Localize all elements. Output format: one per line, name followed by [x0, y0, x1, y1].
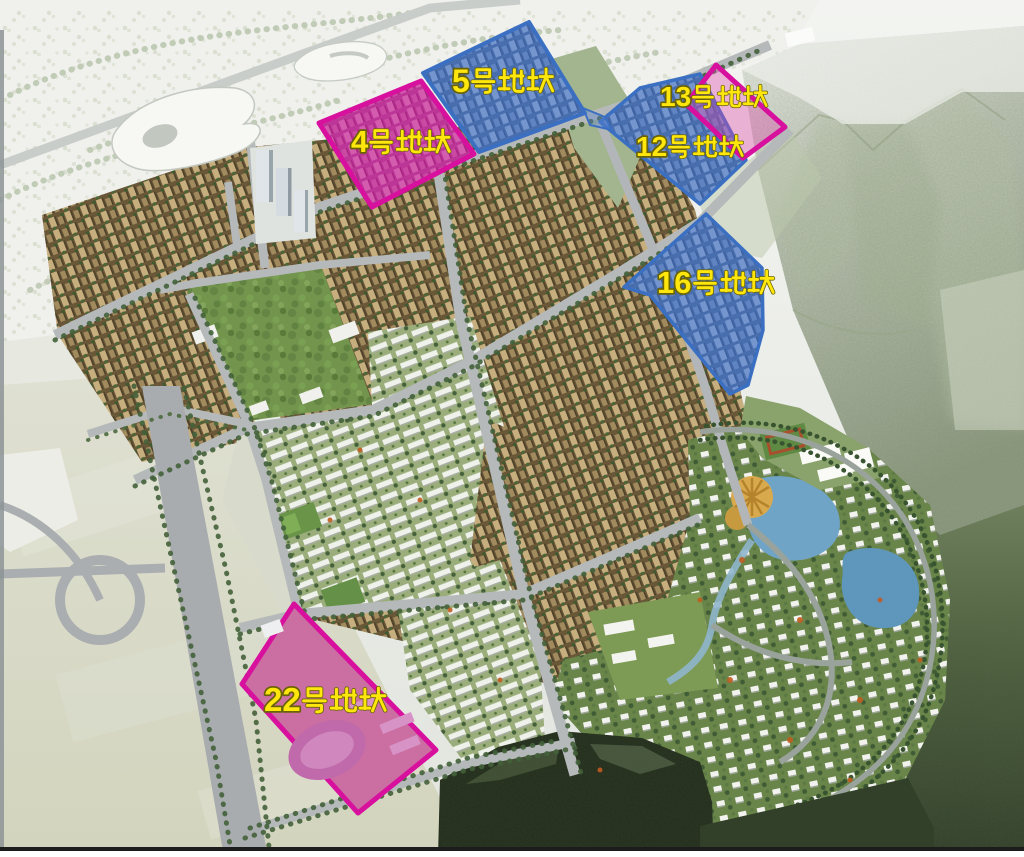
svg-text:16: 16 [657, 265, 691, 300]
svg-text:13: 13 [660, 81, 691, 112]
svg-text:4: 4 [351, 124, 369, 159]
svg-text:5: 5 [452, 63, 470, 99]
svg-text:22: 22 [264, 681, 301, 718]
svg-text:12: 12 [636, 131, 667, 162]
